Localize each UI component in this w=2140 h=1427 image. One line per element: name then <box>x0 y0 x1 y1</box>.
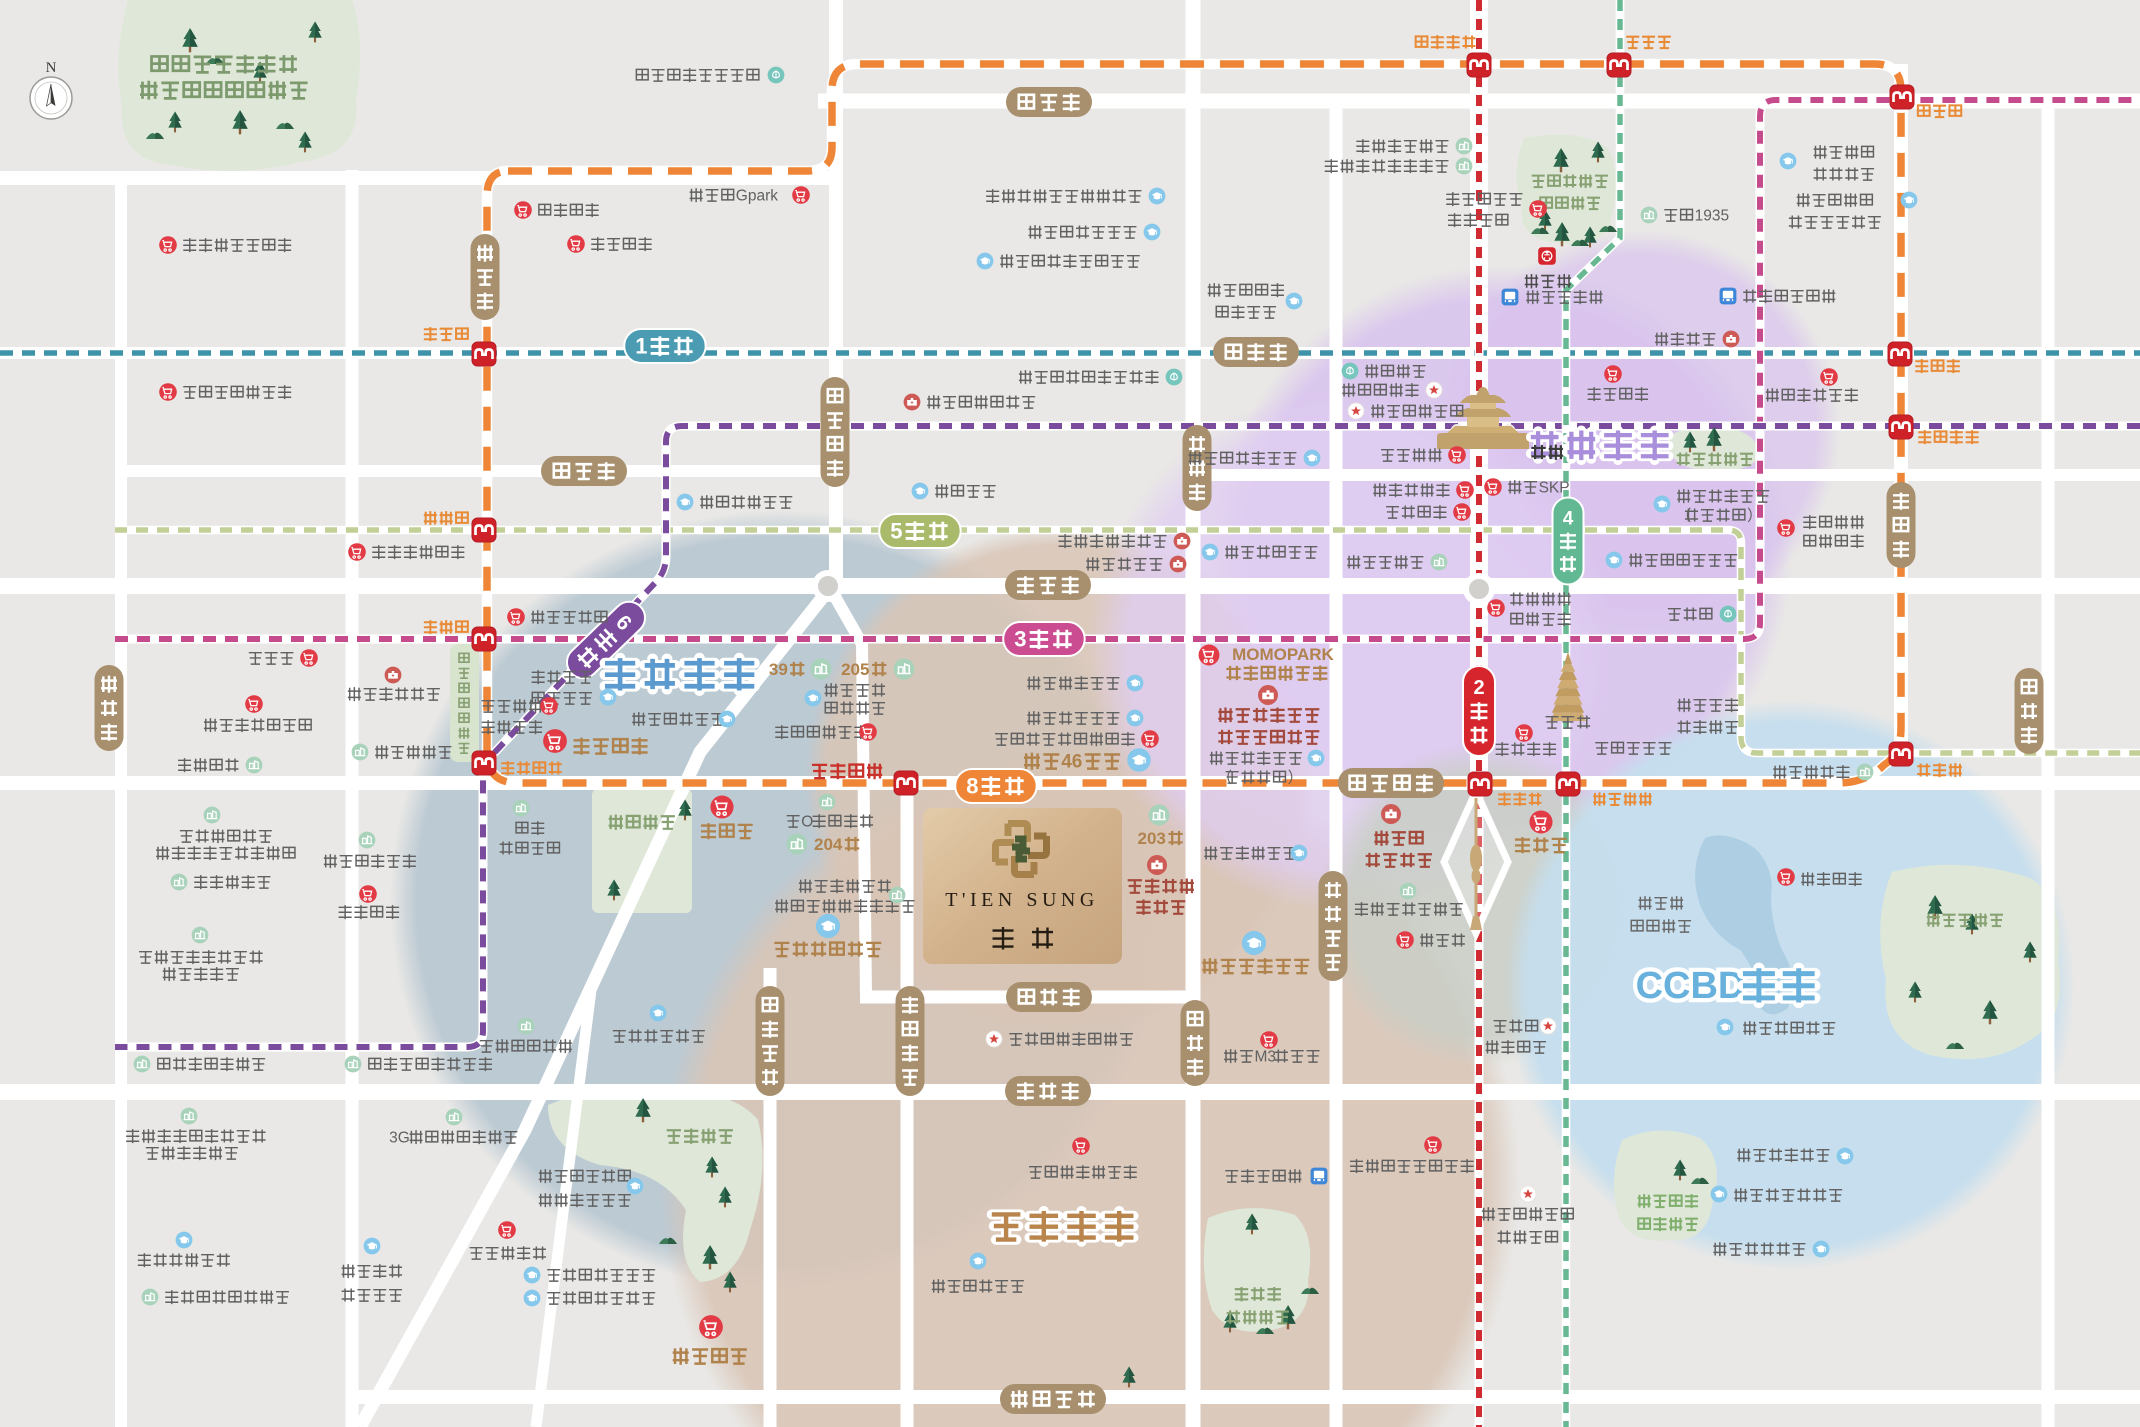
svg-text:1: 1 <box>635 334 647 359</box>
svg-text:3G: 3G <box>389 1129 410 1146</box>
svg-text:M3: M3 <box>1255 1048 1277 1065</box>
svg-text:46: 46 <box>1061 752 1082 773</box>
svg-text:T'IEN SUNG: T'IEN SUNG <box>945 889 1099 911</box>
svg-text:203: 203 <box>1138 829 1166 848</box>
svg-text:204: 204 <box>814 835 843 854</box>
svg-text:N: N <box>46 60 57 76</box>
svg-text:3: 3 <box>1014 627 1026 652</box>
svg-text:39: 39 <box>769 660 788 679</box>
svg-text:O: O <box>801 813 813 830</box>
svg-text:（: （ <box>1676 507 1692 524</box>
svg-text:1935: 1935 <box>1695 207 1729 224</box>
svg-text:205: 205 <box>841 660 869 679</box>
svg-text:CCBD: CCBD <box>1636 965 1746 1007</box>
svg-text:）: ） <box>1747 507 1763 524</box>
svg-text:）: ） <box>1288 769 1304 786</box>
svg-text:MOMOPARK: MOMOPARK <box>1232 645 1334 664</box>
svg-text:5: 5 <box>890 519 902 544</box>
svg-text:SKP: SKP <box>1539 479 1570 496</box>
svg-text:Gpark: Gpark <box>736 187 778 204</box>
svg-text:8: 8 <box>966 774 978 799</box>
svg-text:2: 2 <box>1473 677 1484 699</box>
svg-text:4: 4 <box>1563 509 1574 530</box>
